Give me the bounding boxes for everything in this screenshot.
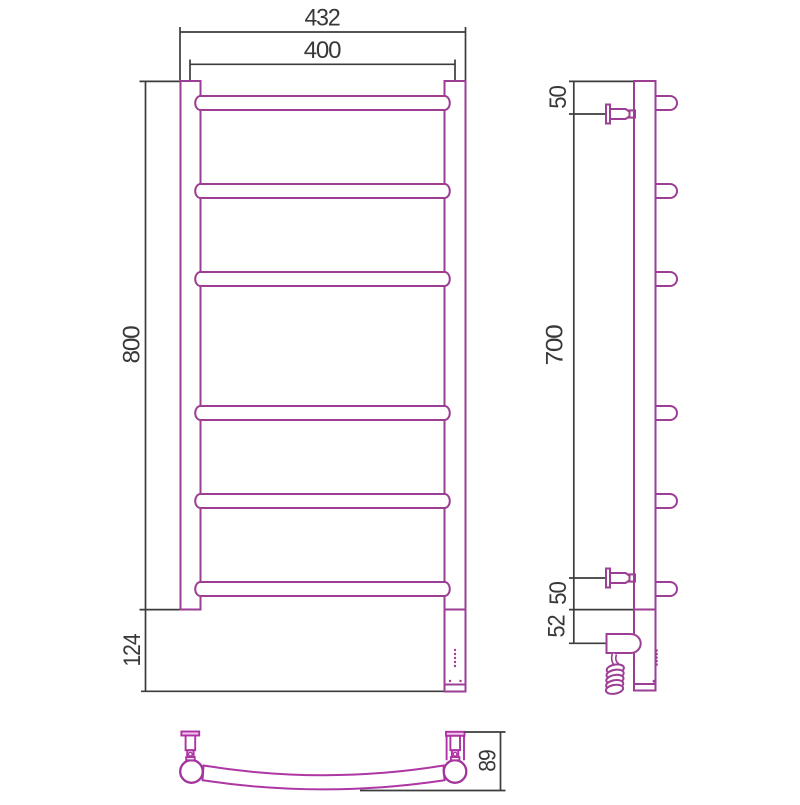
svg-text:432: 432 xyxy=(305,5,341,32)
svg-text:52: 52 xyxy=(544,615,571,638)
svg-text:800: 800 xyxy=(119,326,146,364)
svg-text:50: 50 xyxy=(545,581,572,604)
svg-text:400: 400 xyxy=(304,37,341,64)
svg-text:50: 50 xyxy=(545,85,572,108)
svg-text:89: 89 xyxy=(475,749,502,771)
svg-text:700: 700 xyxy=(542,325,569,366)
svg-text:124: 124 xyxy=(119,634,146,667)
